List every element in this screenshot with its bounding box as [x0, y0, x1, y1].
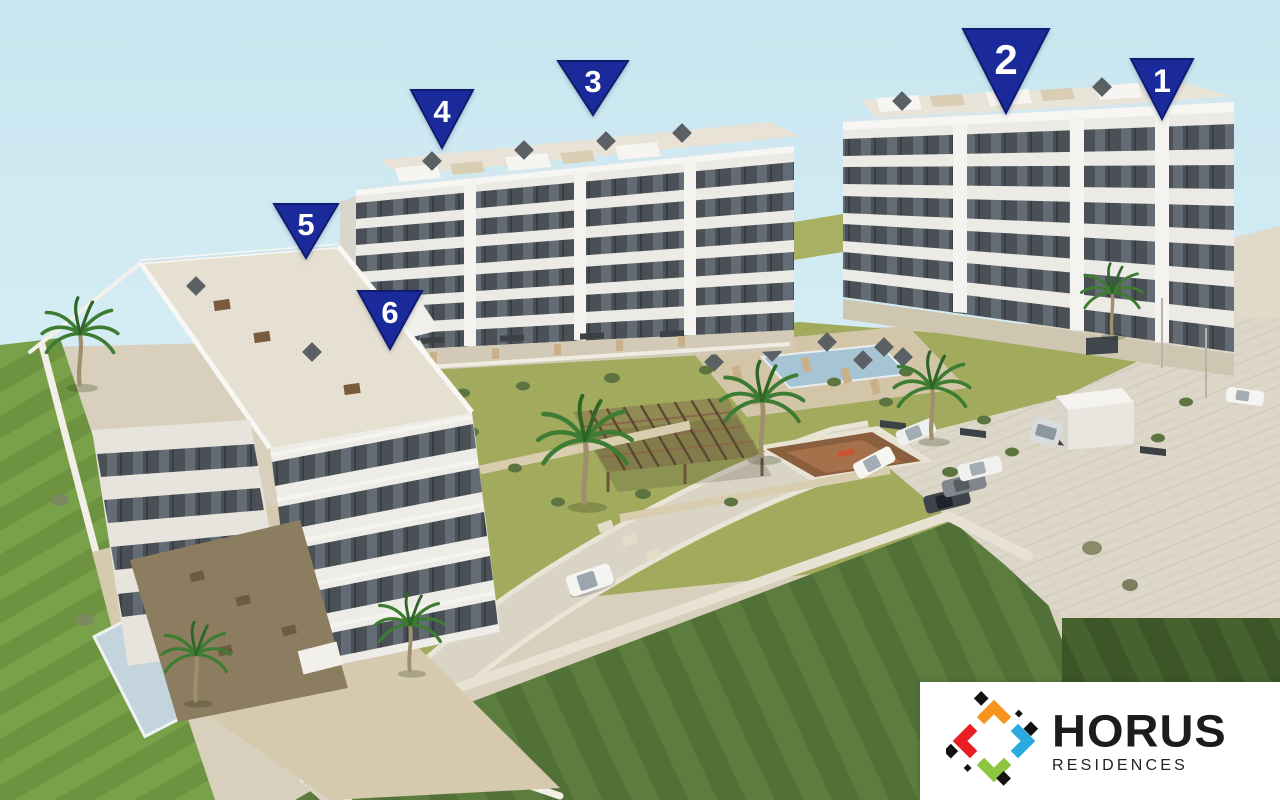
aerial-render: 1 2 3 4 5 6 HORUS RESIDENCES	[0, 0, 1280, 800]
marker-2: 2	[960, 26, 1052, 116]
brand-logo-card: HORUS RESIDENCES	[920, 682, 1280, 800]
horus-logo-icon	[946, 691, 1042, 791]
marker-3: 3	[555, 58, 631, 118]
svg-text:4: 4	[433, 94, 451, 129]
marker-6: 6	[355, 288, 425, 352]
svg-text:2: 2	[994, 36, 1017, 83]
svg-text:1: 1	[1153, 63, 1171, 99]
marker-1: 1	[1128, 56, 1196, 122]
brand-subtitle: RESIDENCES	[1052, 757, 1227, 775]
gap-lawn	[794, 214, 843, 260]
svg-text:5: 5	[297, 207, 314, 242]
svg-text:3: 3	[584, 64, 601, 99]
brand-name: HORUS	[1052, 708, 1227, 753]
scene-render	[0, 0, 1280, 800]
marker-5: 5	[271, 201, 341, 261]
svg-text:6: 6	[381, 295, 398, 330]
marker-4: 4	[408, 87, 476, 151]
